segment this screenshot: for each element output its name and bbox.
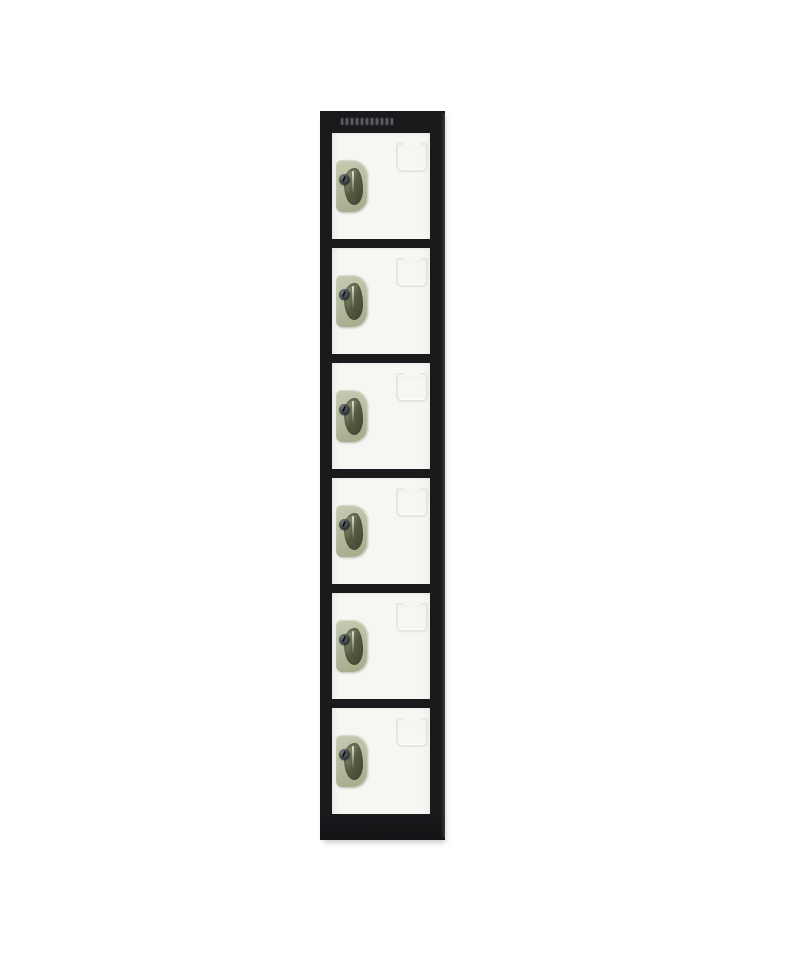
- locker-door: [332, 708, 430, 814]
- locker-door: [332, 248, 430, 354]
- brand-logo-icon: [341, 118, 393, 125]
- card-holder-icon: [396, 721, 428, 747]
- cam-lock-icon: [339, 634, 350, 645]
- locker-cabinet: [320, 111, 445, 840]
- card-holder-icon: [396, 376, 428, 402]
- card-holder-icon: [396, 606, 428, 632]
- product-photo-background: [0, 0, 800, 960]
- door-handle: [336, 735, 367, 787]
- locker-door: [332, 363, 430, 469]
- cam-lock-icon: [339, 404, 350, 415]
- locker-base-plinth: [320, 814, 445, 840]
- door-handle: [336, 620, 367, 672]
- card-holder-icon: [396, 491, 428, 517]
- locker-door-stack: [332, 133, 430, 814]
- locker-door: [332, 133, 430, 239]
- door-handle: [336, 160, 367, 212]
- door-handle: [336, 275, 367, 327]
- card-holder-icon: [396, 261, 428, 287]
- card-holder-icon: [396, 146, 428, 172]
- locker-door: [332, 478, 430, 584]
- door-handle: [336, 390, 367, 442]
- locker-door: [332, 593, 430, 699]
- cam-lock-icon: [339, 519, 350, 530]
- cam-lock-icon: [339, 289, 350, 300]
- cam-lock-icon: [339, 749, 350, 760]
- door-handle: [336, 505, 367, 557]
- locker-top-rail: [332, 111, 430, 133]
- cam-lock-icon: [339, 174, 350, 185]
